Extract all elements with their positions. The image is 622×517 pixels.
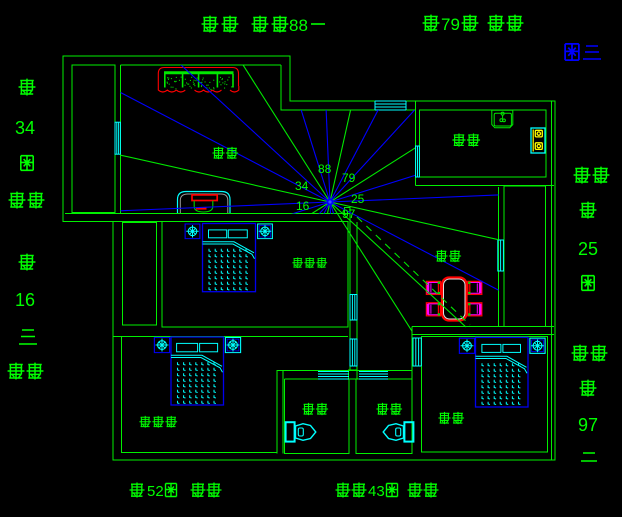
svg-text:16: 16: [296, 199, 310, 213]
svg-text:97: 97: [342, 207, 356, 221]
svg-text:34: 34: [15, 118, 35, 138]
svg-text:34: 34: [295, 179, 309, 193]
svg-text:79: 79: [342, 171, 356, 185]
svg-text:79: 79: [441, 15, 460, 34]
svg-text:97: 97: [578, 415, 598, 435]
svg-text:88: 88: [318, 162, 332, 176]
svg-text:16: 16: [15, 290, 35, 310]
svg-text:52: 52: [147, 483, 164, 500]
svg-text:25: 25: [578, 239, 598, 259]
svg-text:25: 25: [351, 192, 365, 206]
svg-text:43: 43: [368, 483, 385, 500]
svg-text:88: 88: [289, 16, 308, 35]
